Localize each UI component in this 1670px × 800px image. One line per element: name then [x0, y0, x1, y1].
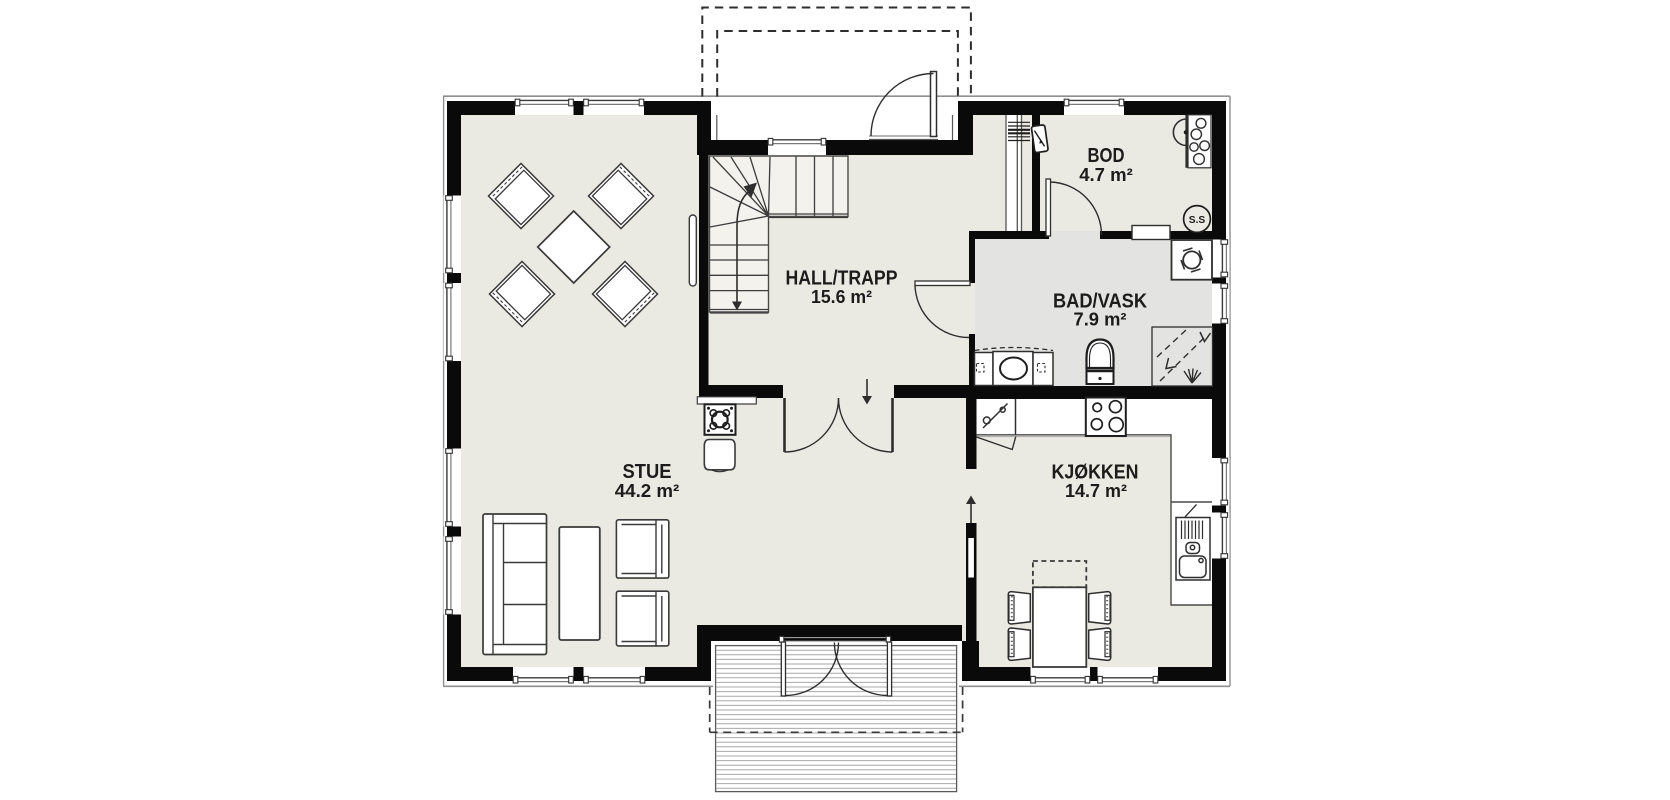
svg-text:7.9 m²: 7.9 m²: [1074, 310, 1127, 330]
svg-text:15.6 m²: 15.6 m²: [811, 287, 872, 307]
svg-text:4.7 m²: 4.7 m²: [1079, 165, 1133, 185]
svg-text:BOD: BOD: [1088, 145, 1125, 167]
svg-text:STUE: STUE: [623, 461, 672, 483]
svg-text:S.S: S.S: [1189, 215, 1206, 226]
svg-text:14.7 m²: 14.7 m²: [1065, 481, 1127, 501]
svg-text:44.2 m²: 44.2 m²: [615, 481, 680, 501]
